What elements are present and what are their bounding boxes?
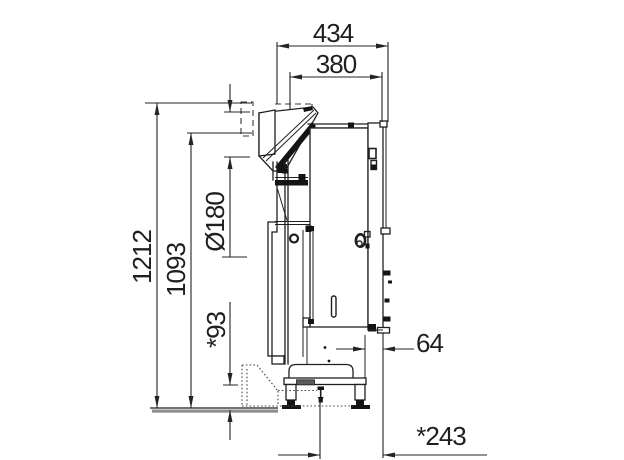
dim-label-inner-width: 380 [316, 49, 357, 79]
dimension-annotations: 434 380 1212 1093 [127, 18, 487, 459]
dim-diameter: Ø180 [200, 84, 250, 257]
body-top-edge [308, 123, 368, 129]
ground-line [150, 408, 278, 413]
dim-label-body-height: 1093 [161, 243, 191, 297]
dim-label-top-width: 434 [313, 18, 354, 48]
dim-base-height: *93 [201, 302, 238, 440]
technical-drawing-canvas: 434 380 1212 1093 [0, 0, 624, 460]
machine-side-view-drawing: 434 380 1212 1093 [0, 0, 624, 460]
dim-body-height: 1093 [161, 133, 252, 408]
dim-label-base-height: *93 [201, 311, 231, 348]
base-frame [282, 365, 370, 410]
dim-label-total-height: 1212 [127, 230, 157, 284]
dim-label-diameter: Ø180 [200, 192, 230, 252]
dim-label-base-depth: *243 [416, 421, 466, 451]
dim-label-rear-offset: 64 [416, 328, 443, 358]
front-panel [303, 128, 368, 327]
